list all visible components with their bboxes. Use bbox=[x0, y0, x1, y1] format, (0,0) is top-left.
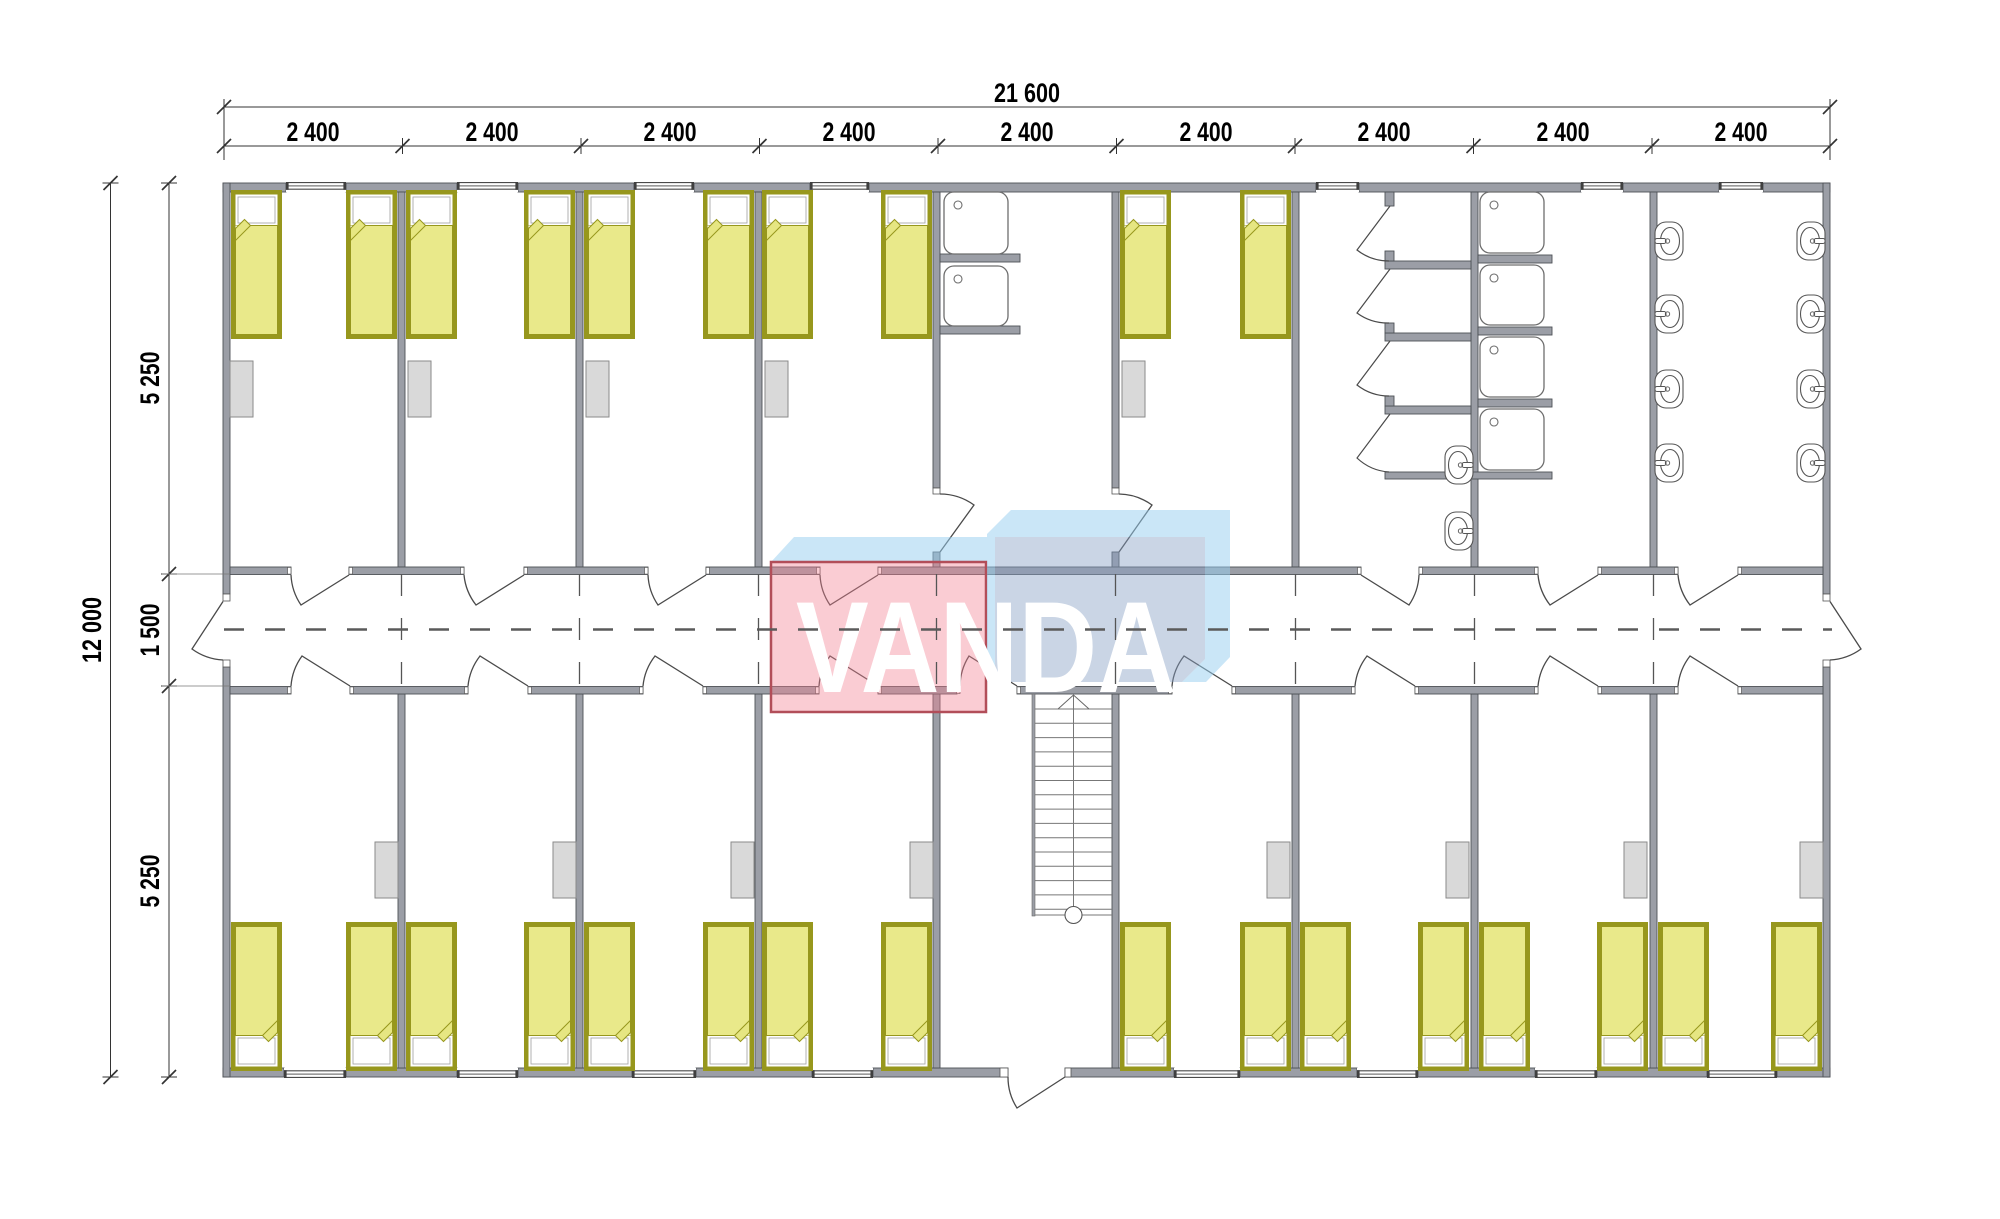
svg-text:2 400: 2 400 bbox=[823, 117, 876, 147]
svg-text:2 400: 2 400 bbox=[1537, 117, 1590, 147]
svg-text:5 250: 5 250 bbox=[135, 855, 165, 908]
svg-text:VANDA: VANDA bbox=[796, 575, 1176, 720]
svg-text:2 400: 2 400 bbox=[1180, 117, 1233, 147]
svg-text:2 400: 2 400 bbox=[1358, 117, 1411, 147]
svg-text:2 400: 2 400 bbox=[1001, 117, 1054, 147]
svg-text:2 400: 2 400 bbox=[1715, 117, 1768, 147]
svg-text:2 400: 2 400 bbox=[466, 117, 519, 147]
svg-text:21 600: 21 600 bbox=[994, 78, 1060, 108]
svg-text:5 250: 5 250 bbox=[135, 352, 165, 405]
svg-text:12 000: 12 000 bbox=[77, 597, 107, 663]
svg-text:2 400: 2 400 bbox=[287, 117, 340, 147]
svg-text:1 500: 1 500 bbox=[135, 604, 165, 657]
svg-text:2 400: 2 400 bbox=[644, 117, 697, 147]
